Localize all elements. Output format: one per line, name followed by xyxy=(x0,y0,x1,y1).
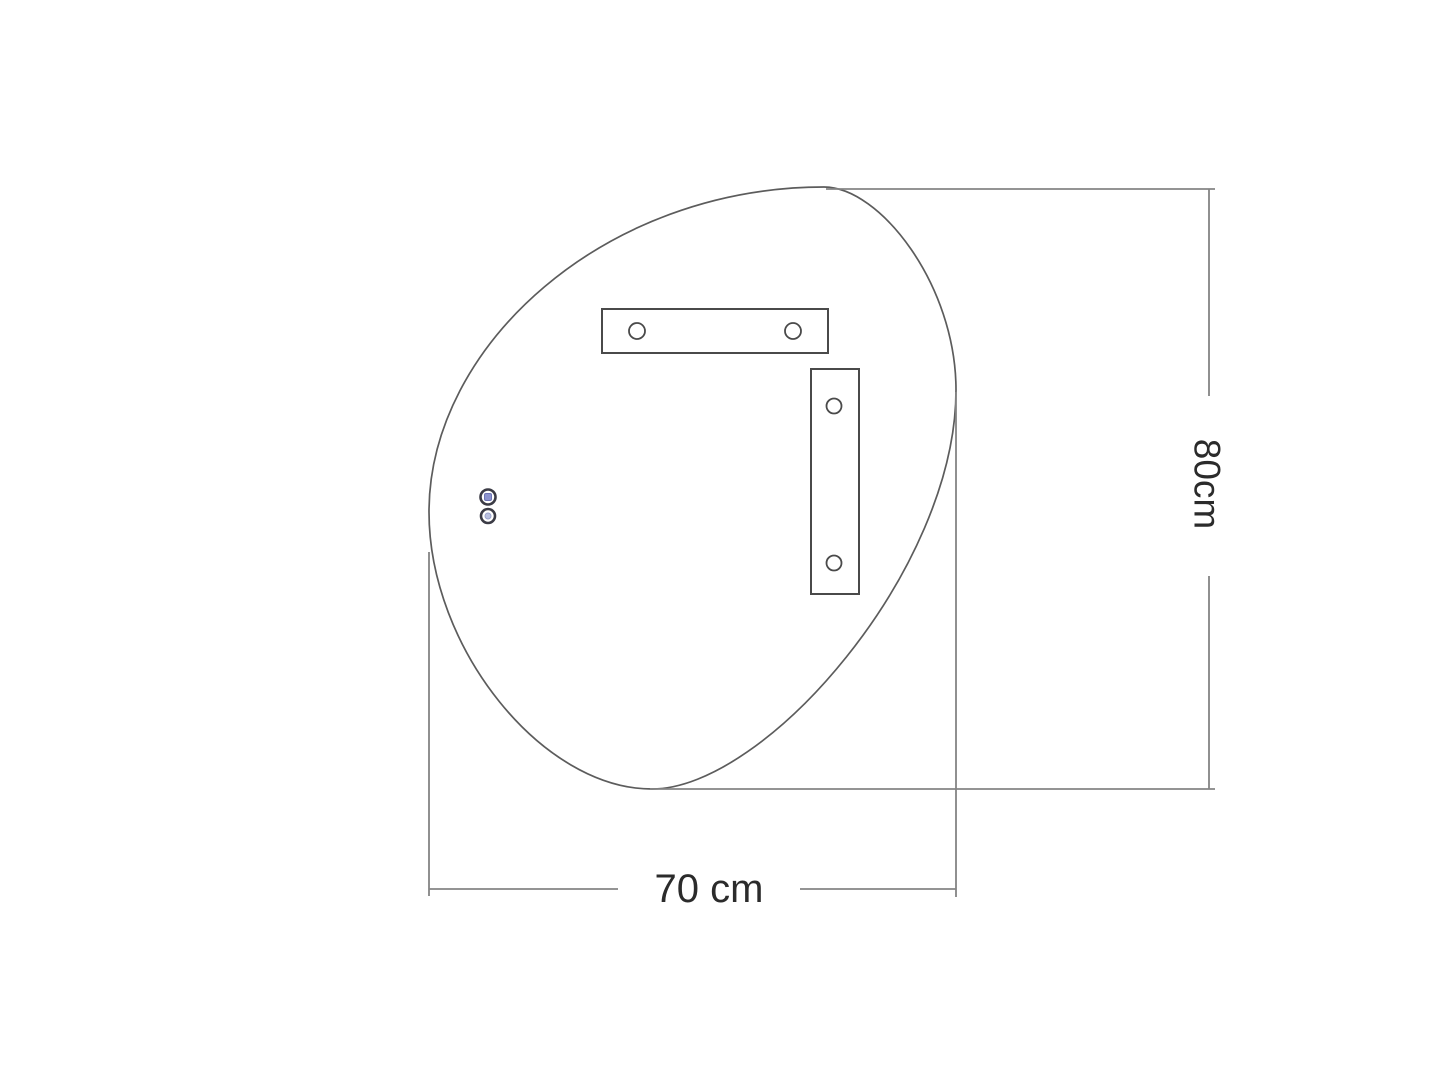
width-dimension-label: 70 cm xyxy=(655,869,764,909)
bracket-screw-hole xyxy=(785,323,801,339)
drawing-svg xyxy=(0,0,1440,1080)
touch-sensor-icon xyxy=(481,490,496,505)
mirror-outline xyxy=(429,187,956,789)
height-dimension xyxy=(650,189,1215,789)
sensor-glyph xyxy=(485,513,491,519)
bracket-screw-hole xyxy=(827,556,842,571)
width-dimension xyxy=(429,392,956,897)
mirror-technical-drawing: 80cm 70 cm xyxy=(0,0,1440,1080)
mounting-bracket-vertical xyxy=(811,369,859,594)
bracket-screw-hole xyxy=(629,323,645,339)
light-sensor-icon xyxy=(481,509,495,523)
bracket-screw-hole xyxy=(827,399,842,414)
height-dimension-label: 80cm xyxy=(1189,439,1226,529)
mounting-bracket-horizontal xyxy=(602,309,828,353)
sensor-glyph xyxy=(485,494,492,501)
